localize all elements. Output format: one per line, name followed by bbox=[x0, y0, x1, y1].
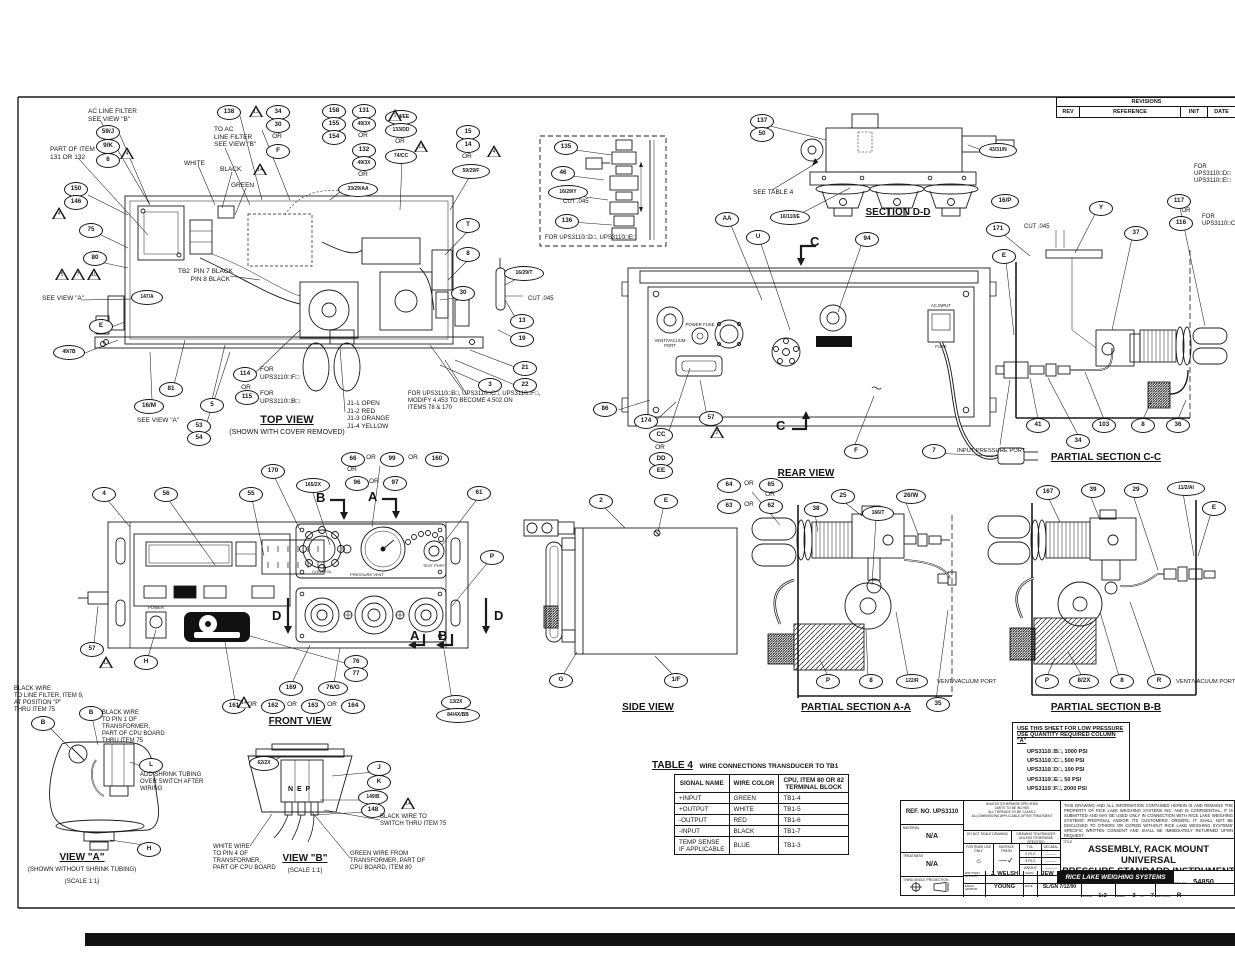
balloon-p: P bbox=[480, 550, 504, 565]
balloon-33-29-aa: 33/29/AA bbox=[338, 182, 378, 197]
annotation: SEE VIEW "A" bbox=[42, 295, 84, 303]
balloon-38: 38 bbox=[804, 502, 828, 517]
balloon-j: J bbox=[367, 761, 391, 776]
annotation: SEE VIEW "A" bbox=[137, 417, 179, 425]
balloon-8-2x: 8/2X bbox=[1069, 674, 1099, 689]
flag-triangle-2: 2 bbox=[710, 426, 724, 438]
balloon-p: P bbox=[1035, 674, 1059, 689]
table4-header: WIRE COLOR bbox=[729, 775, 779, 793]
annotation: FOR UPS3110□D□ UPS3110□E□ bbox=[1194, 164, 1231, 185]
low-pressure-item: UPS3110□B□, 1000 PSI bbox=[1027, 748, 1125, 757]
table4-cell: TB1-4 bbox=[779, 793, 849, 804]
annotation: OR bbox=[744, 480, 754, 488]
balloon-114: 114 bbox=[233, 367, 257, 382]
annotation: VENT/VACUUM PORT bbox=[1176, 679, 1235, 686]
balloon-43-31-n: 43/31/N bbox=[979, 143, 1017, 158]
annotation: GREEN WIRE FROM TRANSFORMER, PART OF CPU… bbox=[350, 851, 425, 872]
partial-section-cc-label: PARTIAL SECTION C-C bbox=[1051, 452, 1161, 464]
annotation: TB2 PIN 7 BLACK PIN 8 BLACK bbox=[178, 268, 233, 283]
flag-triangle-5: 5 bbox=[55, 268, 69, 280]
balloon-66: 66 bbox=[341, 452, 365, 467]
balloon-77: 77 bbox=[344, 667, 368, 682]
balloon-l: L bbox=[139, 758, 163, 773]
balloon-e: E bbox=[1202, 501, 1226, 516]
flag-triangle-11: 11 bbox=[414, 140, 428, 152]
date-value: SL/GN 7/12/90 bbox=[1038, 884, 1081, 890]
table4-cell: -INPUT bbox=[675, 826, 730, 837]
balloon-86: 86 bbox=[593, 402, 617, 417]
annotation: WHITE bbox=[184, 160, 205, 168]
flag-triangle-10: 10 bbox=[87, 268, 101, 280]
balloon-57: 57 bbox=[699, 411, 723, 426]
table4-cell: TB1-7 bbox=[779, 826, 849, 837]
balloon-59-29-f: 59/29/F bbox=[452, 164, 490, 179]
spec-note: UNLESS OTHERWISE SPECIFIED LIMITS TO BE … bbox=[964, 801, 1060, 819]
balloon-35: 35 bbox=[926, 697, 950, 712]
balloon-37: 37 bbox=[1124, 226, 1148, 241]
rlws-use-label: FOR RLWS USE ONLY bbox=[964, 844, 993, 854]
revisions-col-rev: REV bbox=[1057, 107, 1080, 117]
annotation: CUT .045 bbox=[563, 199, 589, 206]
annotation: FUSE bbox=[935, 344, 946, 349]
balloon-26-w: 26/W bbox=[896, 489, 926, 504]
front-view-label: FRONT VIEW bbox=[269, 716, 332, 728]
balloon-81: 81 bbox=[159, 382, 183, 397]
balloon-aa: AA bbox=[715, 212, 739, 227]
annotation: CUT .045 bbox=[528, 296, 554, 303]
legal-text: THIS DRAWING AND ALL INFORMATION CONTAIN… bbox=[1061, 801, 1235, 839]
annotation: BLACK WIRE TO PIN 1 OF TRANSFORMER, PART… bbox=[102, 710, 165, 745]
balloon-64: 64 bbox=[717, 478, 741, 493]
balloon-11-2-ai: 11/2/AI bbox=[1167, 481, 1205, 496]
balloon-171: 171 bbox=[986, 222, 1010, 237]
table4: SIGNAL NAMEWIRE COLORCPU, ITEM 80 OR 82 … bbox=[674, 774, 849, 855]
company-name: RICE LAKE WEIGHING SYSTEMS bbox=[1065, 874, 1165, 881]
annotation: TO AC LINE FILTER SEE VIEW "B" bbox=[214, 126, 256, 149]
flag-triangle-12: 12 bbox=[99, 656, 113, 668]
title-block: REF. NO. UPS3110 MATERIAL N/A TREATMENT … bbox=[900, 800, 1235, 896]
annotation: OR bbox=[272, 133, 282, 141]
annotation: OR bbox=[358, 171, 368, 179]
balloon-63: 63 bbox=[717, 499, 741, 514]
balloon-170: 170 bbox=[261, 464, 285, 479]
balloon-41: 41 bbox=[1026, 418, 1050, 433]
balloon-163: 163 bbox=[301, 699, 325, 714]
balloon-74-cc: 74/CC bbox=[385, 149, 417, 164]
balloon-138: 138 bbox=[217, 105, 241, 120]
balloon-55: 55 bbox=[239, 487, 263, 502]
annotation: (SHOWN WITHOUT SHRINK TUBING) bbox=[28, 866, 136, 873]
table4-row: -INPUTBLACKTB1-7 bbox=[675, 826, 849, 837]
balloon-46: 46 bbox=[551, 166, 575, 181]
table4-cell: +OUTPUT bbox=[675, 804, 730, 815]
balloon-29: 29 bbox=[1124, 483, 1148, 498]
table4-cell: BLUE bbox=[729, 837, 779, 855]
annotation: FOR UPS3110□F□ bbox=[260, 366, 299, 381]
balloon-16-29-y: 16/29/Y bbox=[548, 185, 588, 200]
section-arrow-d-right: D bbox=[494, 608, 503, 623]
annotation: OR bbox=[395, 138, 405, 146]
balloon-62: 62 bbox=[759, 499, 783, 514]
section-arrow-b-bottom: B bbox=[438, 628, 447, 643]
balloon-117: 117 bbox=[1167, 194, 1191, 209]
section-arrow-c-top: C bbox=[810, 234, 819, 249]
drftsmn-label: DRFTSMN APPRVD bbox=[964, 871, 985, 880]
balloon-9-k: 9/K bbox=[96, 139, 120, 154]
third-angle-projection-icon bbox=[904, 882, 960, 892]
balloon-h: H bbox=[134, 655, 158, 670]
annotation: OR bbox=[744, 501, 754, 509]
balloon-103: 103 bbox=[1092, 418, 1116, 433]
balloon-2: 2 bbox=[589, 494, 613, 509]
table4-cell: -OUTPUT bbox=[675, 815, 730, 826]
low-pressure-item: UPS3110□E□, 50 PSI bbox=[1027, 776, 1125, 785]
balloon-76-g: 76/G bbox=[318, 681, 348, 696]
balloon-57: 57 bbox=[80, 642, 104, 657]
annotation: OR bbox=[765, 491, 775, 499]
balloon-169: 169 bbox=[279, 681, 303, 696]
annotation: OR bbox=[366, 454, 376, 462]
view-b-label: VIEW "B" bbox=[282, 853, 327, 865]
table4-row: TEMP SENSE IF APPLICABLEBLUETB1-3 bbox=[675, 837, 849, 855]
balloon-167: 167 bbox=[1036, 485, 1060, 500]
low-pressure-item: UPS3110□F□, 2000 PSI bbox=[1027, 785, 1125, 794]
balloon-56: 56 bbox=[154, 487, 178, 502]
low-pressure-item: UPS3110□D□, 100 PSI bbox=[1027, 766, 1125, 775]
revisions-block: REVISIONS REVREFERENCEINITDATE bbox=[1056, 97, 1235, 118]
balloon-30: 30 bbox=[451, 286, 475, 301]
balloon-14: 14 bbox=[456, 138, 480, 153]
table4-cell: WHITE bbox=[729, 804, 779, 815]
revisions-col-reference: REFERENCE bbox=[1080, 107, 1181, 117]
balloon-19: 19 bbox=[510, 332, 534, 347]
balloon-61: 61 bbox=[467, 486, 491, 501]
annotation: VENT/VACUUM PORT bbox=[937, 679, 996, 686]
table4-title: TABLE 4 bbox=[652, 760, 693, 771]
annotation: AC LINE FILTER SEE VIEW "B" bbox=[88, 108, 137, 123]
revisions-col-date: DATE bbox=[1208, 107, 1235, 117]
annotation: POWER bbox=[148, 605, 164, 610]
balloon-8: 8 bbox=[1131, 418, 1155, 433]
partial-section-bb-label: PARTIAL SECTION B-B bbox=[1051, 702, 1161, 714]
sheet-label: SHEET bbox=[1116, 894, 1126, 897]
flag-triangle-4: 4 bbox=[120, 147, 134, 159]
balloon-59-j: 59/J bbox=[96, 125, 120, 140]
balloon-49-3x: 49/3X bbox=[352, 117, 376, 132]
balloon-94: 94 bbox=[855, 232, 879, 247]
revision-value: R bbox=[1177, 892, 1182, 897]
annotation: CONTROL bbox=[312, 570, 332, 575]
section-arrow-b-top: B bbox=[316, 490, 325, 505]
low-pressure-header2: USE QUANTITY REQUIRED COLUMN "A" bbox=[1017, 732, 1125, 744]
material-value: N/A bbox=[901, 833, 963, 840]
balloon-160: 160 bbox=[425, 452, 449, 467]
table4-block: TABLE 4 WIRE CONNECTIONS TRANSDUCER TO T… bbox=[652, 760, 902, 855]
annotation: (SCALE 1:1) bbox=[288, 867, 323, 874]
date-label: DATE bbox=[1024, 884, 1037, 889]
annotation: FOR UPS3110□C□ bbox=[1202, 214, 1235, 228]
tol-row-label: 2 PLC bbox=[1020, 850, 1041, 857]
balloon-16-m: 16/M bbox=[134, 399, 164, 414]
annotation: OR bbox=[241, 384, 251, 392]
scale-label: SCALE bbox=[1082, 894, 1092, 897]
annotation: OR bbox=[358, 132, 368, 140]
annotation: BLACK bbox=[220, 166, 241, 174]
table4-cell: TB1-6 bbox=[779, 815, 849, 826]
annotation: GREEN bbox=[231, 182, 254, 190]
balloon-k: K bbox=[367, 775, 391, 790]
balloon-133-dd: 133/DD bbox=[385, 123, 417, 138]
balloon-166-t: 166/T bbox=[862, 506, 894, 521]
balloon-39: 39 bbox=[1081, 483, 1105, 498]
annotation: (SCALE 1:1) bbox=[65, 878, 100, 885]
balloon-p: P bbox=[816, 674, 840, 689]
engineering-drawing-sheet: 59/J9/K61383430F15815515413149/3X13249/3… bbox=[0, 0, 1235, 954]
balloon-49-3x: 49/3X bbox=[352, 156, 376, 171]
balloon-h: H bbox=[137, 842, 161, 857]
annotation: SEE TABLE 4 bbox=[753, 189, 793, 197]
sheet-value: 3 bbox=[1132, 893, 1135, 897]
annotation: POWER FUSE bbox=[686, 322, 715, 327]
annotation: WHITE WIRE TO PIN 4 OF TRANSFORMER, PART… bbox=[213, 844, 276, 872]
annotation: AC INPUT bbox=[931, 303, 951, 308]
chk-value: JEW bbox=[1038, 871, 1057, 877]
table4-row: -OUTPUTREDTB1-6 bbox=[675, 815, 849, 826]
balloon-1-f: 1/F bbox=[664, 673, 688, 688]
table4-row: +INPUTGREENTB1-4 bbox=[675, 793, 849, 804]
surface-finish-label: SURFACE FINISH bbox=[994, 844, 1019, 854]
balloon-5: 5 bbox=[200, 398, 224, 413]
table4-cell: GREEN bbox=[729, 793, 779, 804]
annotation: OR bbox=[408, 454, 418, 462]
table4-header: CPU, ITEM 80 OR 82 TERMINAL BLOCK bbox=[779, 775, 849, 793]
balloon-21: 21 bbox=[513, 361, 537, 376]
balloon-6: 6 bbox=[96, 153, 120, 168]
surface-finish-check-icon: —✓ bbox=[994, 856, 1019, 865]
balloon-16-p: 16/P bbox=[991, 194, 1019, 209]
balloon-f: F bbox=[266, 144, 290, 159]
balloon-116: 116 bbox=[1169, 216, 1193, 231]
balloon-e: E bbox=[654, 494, 678, 509]
table4-header: SIGNAL NAME bbox=[675, 775, 730, 793]
tol-row-label: 3 PLC bbox=[1020, 857, 1041, 864]
section-arrow-d-left: D bbox=[272, 608, 281, 623]
balloon-t: T bbox=[456, 218, 480, 233]
balloon-36: 36 bbox=[1166, 418, 1190, 433]
section-arrow-c-bottom: C bbox=[776, 418, 785, 433]
balloon-b: B bbox=[31, 716, 55, 731]
rear-view-label: REAR VIEW bbox=[778, 468, 835, 480]
table4-cell: RED bbox=[729, 815, 779, 826]
low-pressure-note: USE THIS SHEET FOR LOW PRESSURE USE QUAN… bbox=[1012, 722, 1130, 802]
material-label: MATERIAL bbox=[901, 825, 963, 830]
table4-cell: +INPUT bbox=[675, 793, 730, 804]
annotation: OR bbox=[462, 153, 472, 161]
balloon-r: R bbox=[1147, 674, 1171, 689]
annotation: BLACK WIRE TO LINE FILTER, ITEM 9, AT PO… bbox=[14, 686, 83, 714]
annotation: BLACK WIRE TO SWITCH THRU ITEM 75 bbox=[380, 814, 446, 828]
balloon-50: 50 bbox=[750, 127, 774, 142]
balloon-62-2x: 62/2X bbox=[249, 756, 279, 771]
tolerances-header: DRAWING TOLERANCES UNLESS OTHERWISE SPEC… bbox=[1012, 831, 1060, 844]
table4-cell: TEMP SENSE IF APPLICABLE bbox=[675, 837, 730, 855]
engr-value: YOUNG bbox=[986, 884, 1023, 890]
balloon-54: 54 bbox=[187, 431, 211, 446]
balloon-136: 136 bbox=[555, 214, 579, 229]
balloon-4: 4 bbox=[92, 487, 116, 502]
balloon-146: 146 bbox=[64, 195, 88, 210]
annotation: TEST PORT bbox=[423, 564, 445, 569]
table4-cell: TB1-3 bbox=[779, 837, 849, 855]
flag-triangle-13: 13 bbox=[249, 105, 263, 117]
ref-no: REF. NO. UPS3110 bbox=[901, 809, 963, 815]
balloon-30: 30 bbox=[266, 118, 290, 133]
annotation: PRESSURE VENT bbox=[350, 573, 384, 578]
annotation: OR bbox=[655, 444, 665, 452]
balloon-16-29-t: 16/29/T bbox=[504, 266, 544, 281]
annotation: OR bbox=[1182, 208, 1191, 215]
drawing-title: ASSEMBLY, RACK MOUNT UNIVERSALPRESSURE S… bbox=[1061, 845, 1235, 871]
balloon-y: Y bbox=[1089, 201, 1113, 216]
treatment-value: N/A bbox=[901, 861, 963, 868]
balloon-84-4x-bb: 84/4X/BB bbox=[436, 708, 480, 723]
annotation: PART OF ITEM 131 OR 132 bbox=[50, 146, 95, 161]
annotation: FOR UPS3110□B□, UPS3110□C□, UPS3110□F□, … bbox=[408, 391, 540, 412]
balloon-8: 8 bbox=[1110, 674, 1134, 689]
rlws-sun-icon: ☼ bbox=[964, 856, 993, 865]
table4-cell: TB1-5 bbox=[779, 804, 849, 815]
revisions-col-init: INIT bbox=[1181, 107, 1208, 117]
section-dd-label: SECTION D-D bbox=[866, 207, 931, 219]
do-not-scale: DO NOT SCALE DRAWING bbox=[964, 831, 1011, 837]
top-view-label: TOP VIEW bbox=[260, 414, 313, 427]
table4-row: +OUTPUTWHITETB1-5 bbox=[675, 804, 849, 815]
annotation: CUT .045 bbox=[1024, 224, 1050, 231]
annotation: FOR UPS3110□D□, UPS3110□E□ bbox=[545, 235, 636, 242]
chk-label: CHKD bbox=[1024, 871, 1037, 876]
annotation: VENT/VACUUM PORT bbox=[655, 338, 686, 348]
balloon-ee: EE bbox=[649, 464, 673, 479]
annotation: INPUT PRESSURE PORT bbox=[957, 448, 1025, 455]
balloon-16-110-e: 16/110/E bbox=[770, 210, 810, 225]
balloon-7: 7 bbox=[922, 444, 946, 459]
balloon-115: 115 bbox=[235, 390, 259, 405]
balloon-154: 154 bbox=[322, 130, 346, 145]
balloon-96: 96 bbox=[345, 476, 369, 491]
revision-label: REVISION bbox=[1156, 894, 1170, 897]
annotation: OR bbox=[327, 701, 337, 709]
annotation: N E P bbox=[288, 786, 310, 794]
balloon-49-7b: 49/7B bbox=[53, 345, 85, 360]
balloon-135: 135 bbox=[554, 140, 578, 155]
tol-row-value: ——— bbox=[1042, 850, 1060, 857]
annotation: ADD SHRINK TUBING OVER SWITCH AFTER WIRI… bbox=[140, 772, 203, 793]
balloon-f: F bbox=[844, 444, 868, 459]
treatment-label: TREATMENT bbox=[901, 853, 963, 858]
balloon-13: 13 bbox=[510, 314, 534, 329]
low-pressure-item: UPS3110□C□, 500 PSI bbox=[1027, 757, 1125, 766]
annotation: FOR UPS3110□B□ bbox=[260, 390, 300, 405]
table4-subtitle: WIRE CONNECTIONS TRANSDUCER TO TB1 bbox=[699, 763, 838, 770]
flag-triangle-4: 4 bbox=[487, 145, 501, 157]
balloon-e: E bbox=[89, 319, 113, 334]
balloon-97: 97 bbox=[383, 476, 407, 491]
engr-label: ENGR APPRVD bbox=[964, 884, 985, 893]
flag-triangle-7: 7 bbox=[71, 268, 85, 280]
side-view-label: SIDE VIEW bbox=[622, 702, 674, 714]
annotation: (SHOWN WITH COVER REMOVED) bbox=[229, 429, 345, 437]
dwg-no-value: 54850 bbox=[1193, 877, 1214, 884]
annotation: OR bbox=[347, 466, 357, 474]
balloon-cc: CC bbox=[649, 428, 673, 443]
balloon-75: 75 bbox=[79, 223, 103, 238]
table4-cell: BLACK bbox=[729, 826, 779, 837]
balloon-34: 34 bbox=[1066, 434, 1090, 449]
view-a-label: VIEW "A" bbox=[59, 852, 104, 864]
flag-triangle-14: 14 bbox=[253, 163, 267, 175]
annotation: OR bbox=[369, 478, 379, 486]
balloon-162: 162 bbox=[261, 699, 285, 714]
flag-triangle-4: 4 bbox=[52, 207, 66, 219]
partial-section-aa-label: PARTIAL SECTION A-A bbox=[801, 702, 911, 714]
balloon-174: 174 bbox=[634, 414, 658, 429]
scale-value: 1:2 bbox=[1098, 893, 1106, 897]
balloon-147-a: 147/A bbox=[131, 290, 163, 305]
balloon-25: 25 bbox=[831, 489, 855, 504]
section-arrow-a-bottom: A bbox=[410, 628, 419, 643]
balloon-8: 8 bbox=[456, 247, 480, 262]
balloon-99: 99 bbox=[380, 452, 404, 467]
balloon-8: 8 bbox=[859, 674, 883, 689]
balloon-164: 164 bbox=[341, 699, 365, 714]
annotation: J1-1 OPEN J1-2 RED J1-3 ORANGE J1-4 YELL… bbox=[347, 400, 390, 431]
balloon-80: 80 bbox=[83, 251, 107, 266]
balloon-e: E bbox=[992, 249, 1016, 264]
tol-row-value: ——— bbox=[1042, 857, 1060, 864]
flag-triangle-14: 14 bbox=[401, 797, 415, 809]
section-arrow-a-top: A bbox=[368, 489, 377, 504]
revisions-title: REVISIONS bbox=[1057, 98, 1235, 107]
drftsmn-value: J. WELSH bbox=[986, 871, 1023, 877]
balloon-122-r: 122/R bbox=[896, 674, 928, 689]
annotation: OR bbox=[287, 701, 297, 709]
sheet-total: 7 bbox=[1151, 893, 1154, 897]
balloon-u: U bbox=[746, 230, 770, 245]
balloon-g: G bbox=[549, 673, 573, 688]
